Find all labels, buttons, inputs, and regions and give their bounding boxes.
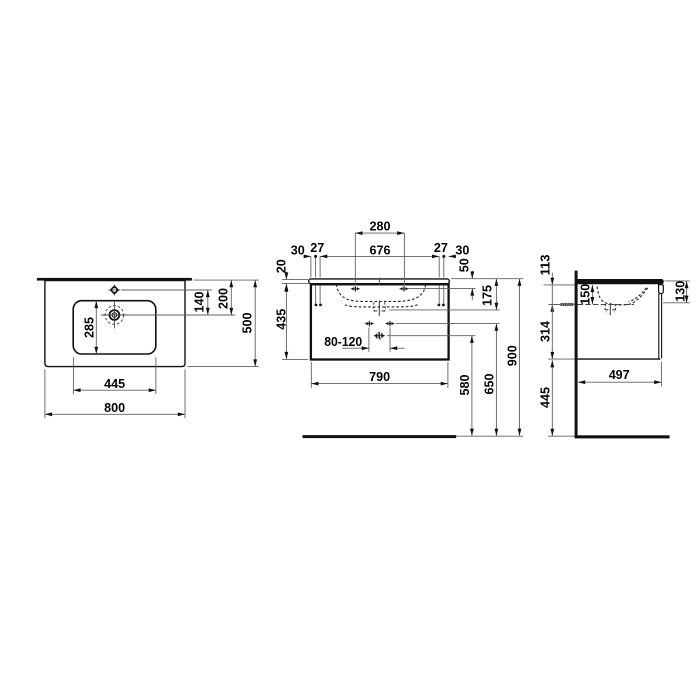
svg-text:150: 150 <box>577 284 592 305</box>
svg-text:130: 130 <box>672 281 687 302</box>
svg-text:27: 27 <box>434 240 448 255</box>
svg-text:280: 280 <box>370 219 391 234</box>
svg-text:445: 445 <box>104 376 125 391</box>
svg-text:497: 497 <box>609 367 630 382</box>
svg-text:435: 435 <box>274 309 289 330</box>
svg-text:50: 50 <box>456 258 471 272</box>
svg-text:175: 175 <box>480 285 495 306</box>
svg-text:790: 790 <box>369 369 390 384</box>
svg-text:113: 113 <box>538 255 553 276</box>
svg-text:800: 800 <box>104 400 125 415</box>
svg-text:200: 200 <box>216 288 231 309</box>
svg-text:445: 445 <box>537 387 552 408</box>
svg-text:900: 900 <box>504 345 519 366</box>
svg-text:30: 30 <box>455 242 469 257</box>
svg-text:80-120: 80-120 <box>324 334 362 349</box>
svg-text:580: 580 <box>457 375 472 396</box>
svg-text:285: 285 <box>81 317 96 338</box>
svg-text:20: 20 <box>273 259 288 273</box>
svg-text:650: 650 <box>482 374 497 395</box>
svg-text:500: 500 <box>240 313 255 334</box>
svg-text:140: 140 <box>191 292 206 313</box>
svg-text:676: 676 <box>370 242 391 257</box>
svg-text:314: 314 <box>537 320 552 342</box>
svg-text:27: 27 <box>310 240 324 255</box>
svg-text:30: 30 <box>291 242 305 257</box>
